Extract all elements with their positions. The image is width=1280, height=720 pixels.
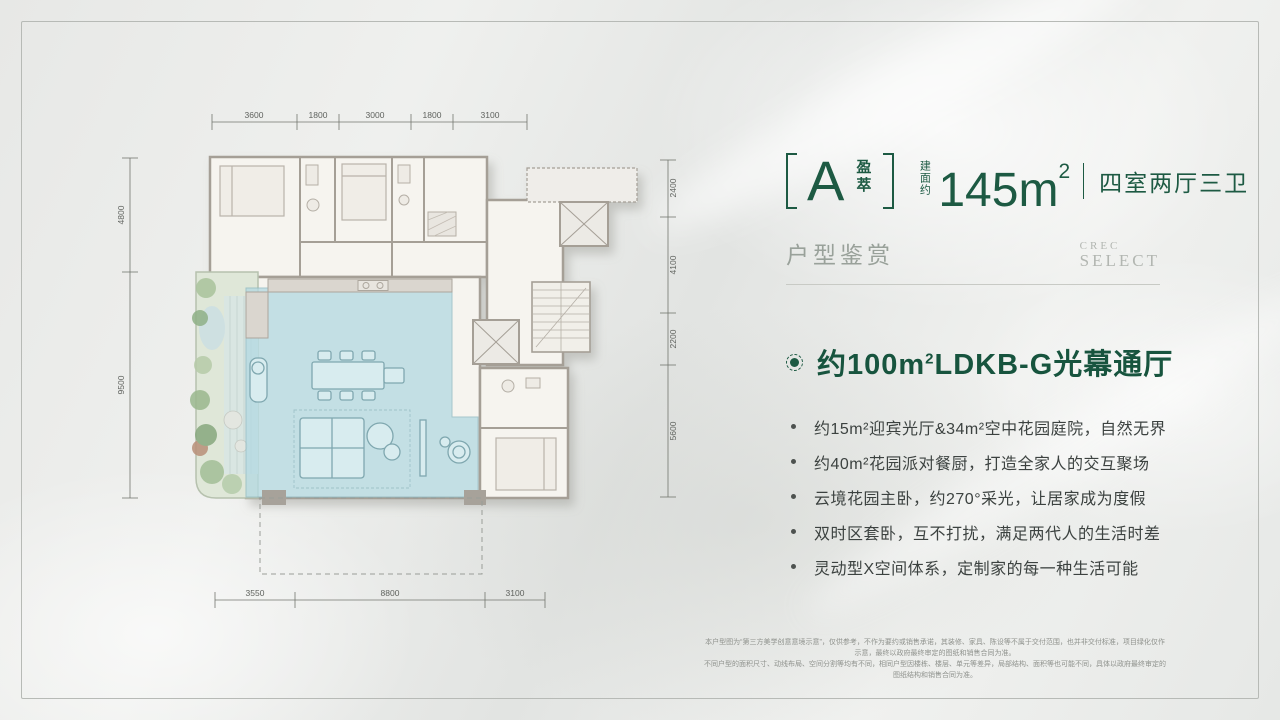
dining-table [312, 362, 384, 389]
svg-text:1800: 1800 [423, 110, 442, 120]
stairs-icon [532, 282, 590, 352]
bracket-left-icon [786, 153, 797, 209]
section-title: 户型鉴赏 [786, 236, 894, 270]
list-item: 约15m²迎宾光厅&34m²空中花园庭院，自然无界 [786, 409, 1160, 444]
svg-text:9500: 9500 [116, 375, 126, 394]
area-value: 145m2 [938, 147, 1070, 216]
svg-text:3600: 3600 [245, 110, 264, 120]
list-item: 灵动型X空间体系，定制家的每一种生活可能 [786, 549, 1160, 584]
bullet-dot-icon [791, 424, 796, 429]
terrace [527, 168, 637, 202]
target-icon [786, 354, 803, 371]
tv-cabinet [420, 420, 426, 476]
room-layout-text: 四室两厅三卫 [1099, 164, 1249, 198]
brand-logo: CREC SELECT [1080, 240, 1160, 270]
horizontal-divider [786, 284, 1160, 285]
disclaimer-line: 不同户型的面积尺寸、动线布局、空间分割等均有不同，相同户型因楼栋、楼层、单元等差… [704, 659, 1166, 681]
bullet-dot-icon [791, 459, 796, 464]
disclaimer-line: 本户型图为“第三方美学创意意境示意”，仅供参考，不作为要约或销售承诺，其装修、家… [704, 637, 1166, 659]
list-item: 约40m²花园派对餐厨，打造全家人的交互聚场 [786, 444, 1160, 479]
dashed-expansion-outline [260, 498, 482, 574]
bullet-dot-icon [791, 529, 796, 534]
svg-text:3000: 3000 [366, 110, 385, 120]
bullet-dot-icon [791, 564, 796, 569]
headline-text: 约100m2LDKB-G光幕通厅 [817, 341, 1173, 383]
list-item: 双时区套卧，互不打扰，满足两代人的生活时差 [786, 514, 1160, 549]
floor-plan: 3600 1800 3000 1800 3100 4800 9500 2400 … [100, 90, 700, 620]
brochure-page: 3600 1800 3000 1800 3100 4800 9500 2400 … [0, 0, 1280, 720]
unit-type-letter: A [807, 153, 844, 209]
svg-text:2400: 2400 [668, 178, 678, 197]
entry-hatch [428, 212, 456, 236]
info-panel: A 盈萃 建面约 145m2 四室两厅三卫 户型鉴赏 CREC SELECT 约… [786, 150, 1160, 584]
svg-text:5600: 5600 [668, 421, 678, 440]
area-label: 建面约 [916, 160, 932, 202]
svg-text:3100: 3100 [481, 110, 500, 120]
svg-text:8800: 8800 [381, 588, 400, 598]
headline-row: 约100m2LDKB-G光幕通厅 [786, 341, 1160, 383]
bracket-right-icon [883, 153, 894, 209]
unit-type-name: 盈萃 [852, 159, 873, 203]
svg-text:4800: 4800 [116, 205, 126, 224]
feature-list: 约15m²迎宾光厅&34m²空中花园庭院，自然无界 约40m²花园派对餐厨，打造… [786, 409, 1160, 584]
unit-title-block: A 盈萃 建面约 145m2 四室两厅三卫 [786, 150, 1160, 212]
svg-text:2200: 2200 [668, 329, 678, 348]
svg-text:1800: 1800 [309, 110, 328, 120]
svg-text:3100: 3100 [506, 588, 525, 598]
section-row: 户型鉴赏 CREC SELECT [786, 236, 1160, 270]
svg-text:3550: 3550 [246, 588, 265, 598]
svg-text:4100: 4100 [668, 255, 678, 274]
disclaimer: 本户型图为“第三方美学创意意境示意”，仅供参考，不作为要约或销售承诺，其装修、家… [704, 637, 1166, 681]
list-item: 云境花园主卧，约270°采光，让居家成为度假 [786, 479, 1160, 514]
vertical-divider [1083, 163, 1084, 199]
bullet-dot-icon [791, 494, 796, 499]
